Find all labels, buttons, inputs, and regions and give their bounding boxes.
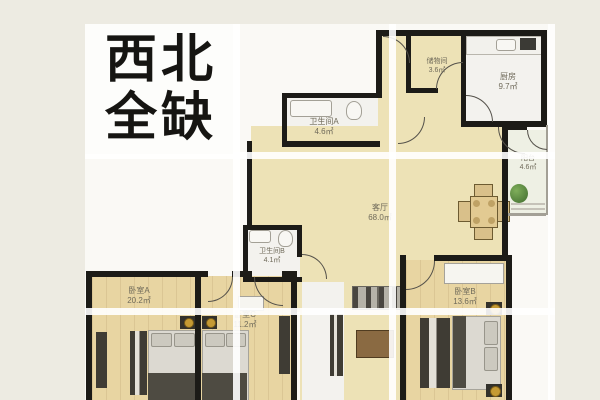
sink-icon [249, 230, 271, 243]
lamp-icon [490, 386, 501, 397]
room-area: 4.6㎡ [309, 127, 338, 137]
room-label-storage: 储物间 3.6㎡ [427, 58, 448, 76]
wardrobe-icon [96, 332, 107, 388]
bathtub-icon [290, 100, 332, 117]
room-area: 20.2㎡ [127, 296, 151, 306]
annotation-box: 西北 全缺 [85, 24, 233, 154]
room-name: 储物间 [427, 58, 448, 67]
bedroom-b-shelf [444, 263, 504, 284]
lamp-icon [184, 318, 194, 328]
wall [406, 88, 438, 93]
room-label-bedroom-b: 卧室B 13.6㎡ [453, 287, 477, 307]
closet-icon [130, 331, 147, 395]
room-area: 4.1㎡ [259, 257, 285, 266]
grid-hline-2 [85, 308, 555, 315]
balcony-rail [508, 213, 546, 216]
room-area: 3.6㎡ [427, 67, 448, 76]
room-name: 卧室B [453, 287, 477, 297]
wall [282, 93, 382, 98]
floorplan-page: 储物间 3.6㎡ 厨房 9.7㎡ 卫生间A 4.6㎡ 阳台 4.6㎡ 客厅 68… [0, 0, 600, 400]
sideboard-cabinet [352, 286, 378, 310]
wall [506, 255, 512, 400]
toilet-icon [346, 101, 362, 120]
kitchen-sink-icon [496, 39, 516, 51]
wall [291, 277, 297, 400]
chair-icon [474, 184, 493, 197]
room-area: 9.7㎡ [498, 82, 517, 92]
wall [282, 93, 287, 146]
grid-vline-3 [548, 24, 555, 400]
plant-icon [510, 184, 528, 203]
hallway-wardrobe [330, 314, 343, 376]
room-name: 卫生间B [259, 248, 285, 257]
grid-vline-1 [233, 24, 240, 400]
toilet-icon [278, 230, 293, 247]
bed-c [202, 330, 249, 400]
room-name: 卧室A [127, 286, 151, 296]
annotation-line-2: 全缺 [101, 89, 217, 147]
wall [86, 271, 208, 277]
wall [243, 225, 302, 230]
wall [541, 30, 547, 127]
bed-b [452, 316, 501, 390]
closet-icon [420, 318, 450, 388]
wall [434, 255, 512, 261]
wall [282, 141, 380, 147]
chair-icon [474, 227, 493, 240]
room-label-bathroom-b: 卫生间B 4.1㎡ [259, 248, 285, 266]
wall [406, 36, 411, 93]
balcony-radiator [511, 203, 545, 213]
wardrobe-icon [279, 316, 290, 374]
wall [297, 225, 302, 257]
room-label-kitchen: 厨房 9.7㎡ [498, 72, 517, 92]
room-area: 13.6㎡ [453, 297, 477, 307]
stove-icon [520, 38, 536, 50]
bed-a [148, 330, 198, 400]
wall [376, 30, 382, 98]
lamp-icon [206, 318, 216, 328]
wall [86, 271, 92, 400]
annotation-line-1: 西北 [101, 31, 217, 89]
room-name: 卫生间A [309, 117, 338, 127]
room-label-bedroom-a: 卧室A 20.2㎡ [127, 286, 151, 306]
chair-icon [458, 201, 471, 222]
wall [195, 277, 201, 400]
dining-table [470, 196, 498, 228]
room-area: 4.6㎡ [520, 164, 537, 173]
room-label-bathroom-a: 卫生间A 4.6㎡ [309, 117, 338, 137]
room-name: 厨房 [498, 72, 517, 82]
grid-vline-2 [389, 24, 396, 400]
